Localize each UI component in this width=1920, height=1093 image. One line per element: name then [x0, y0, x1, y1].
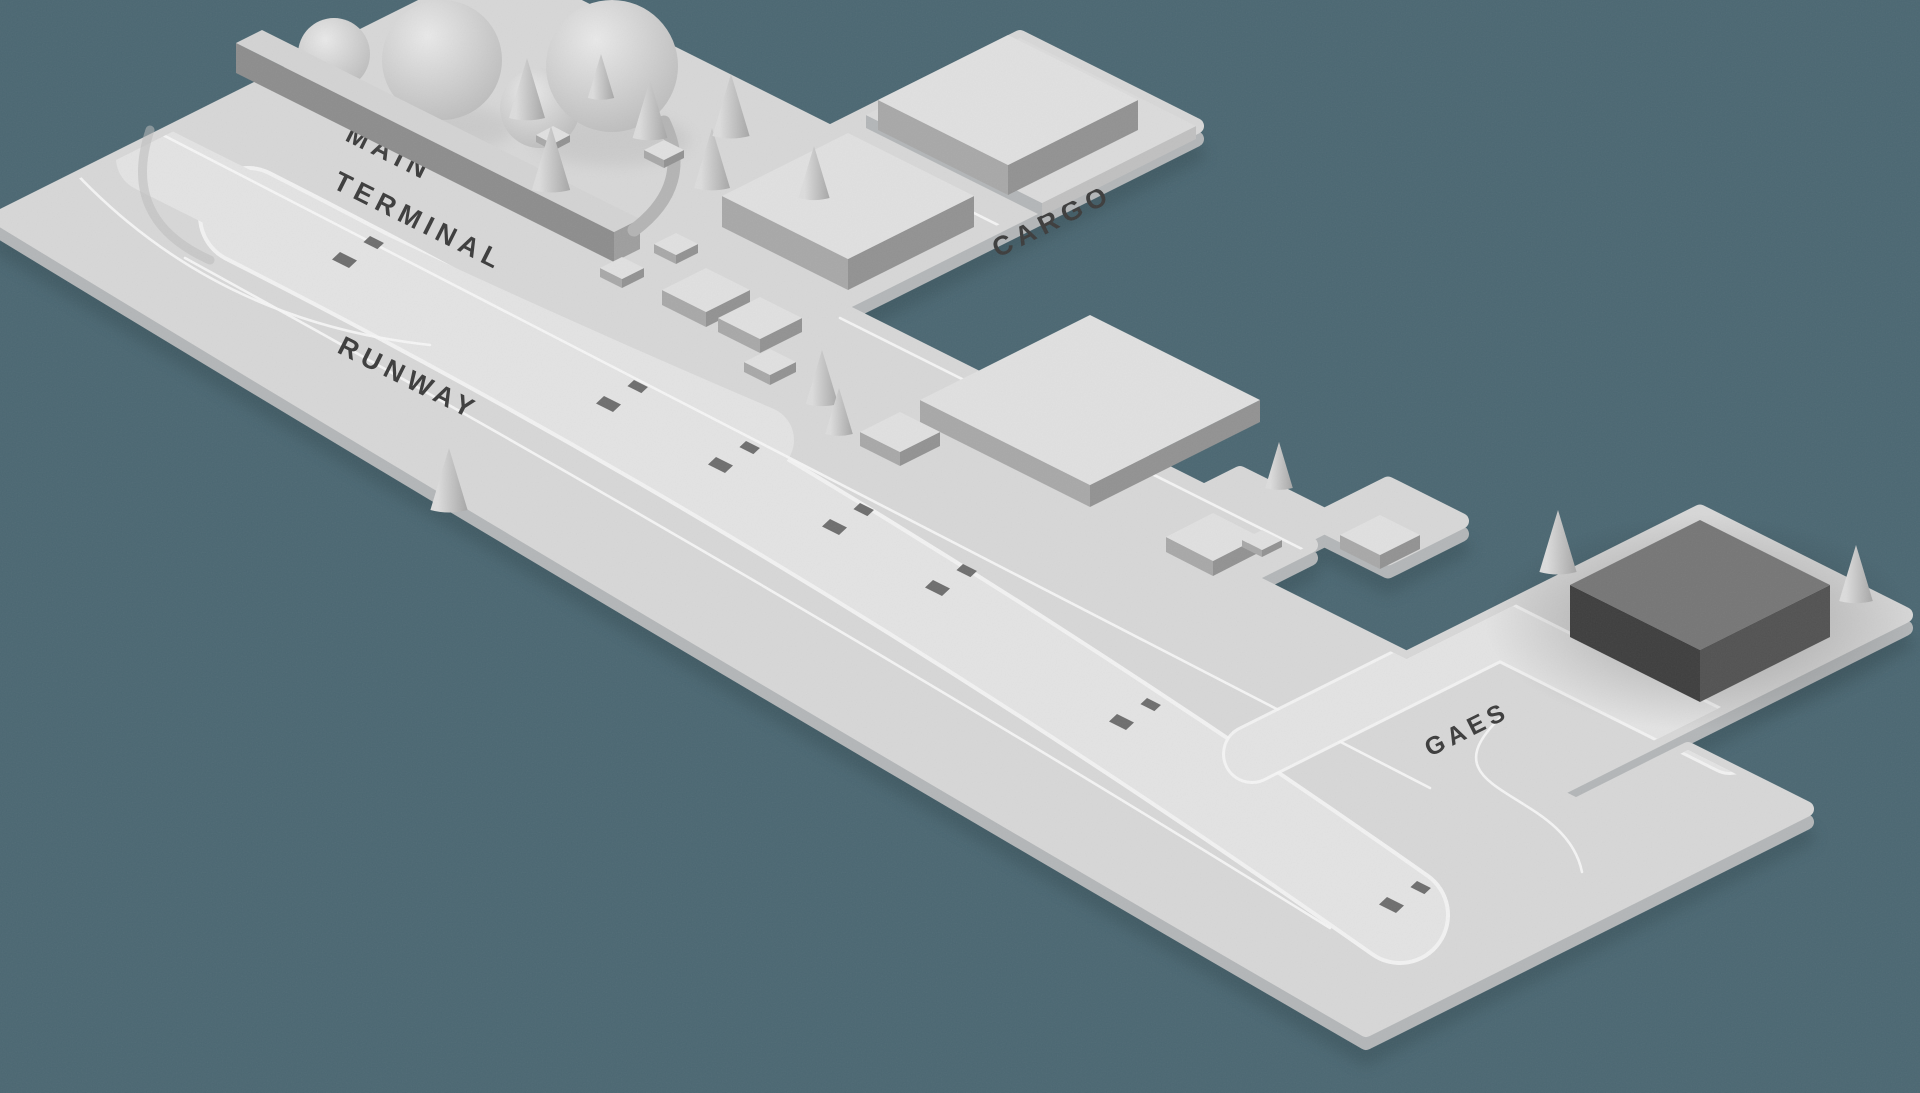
airport-isometric-map: MAIN TERMINAL RUNWAY CARGO GAES — [0, 0, 1920, 1093]
